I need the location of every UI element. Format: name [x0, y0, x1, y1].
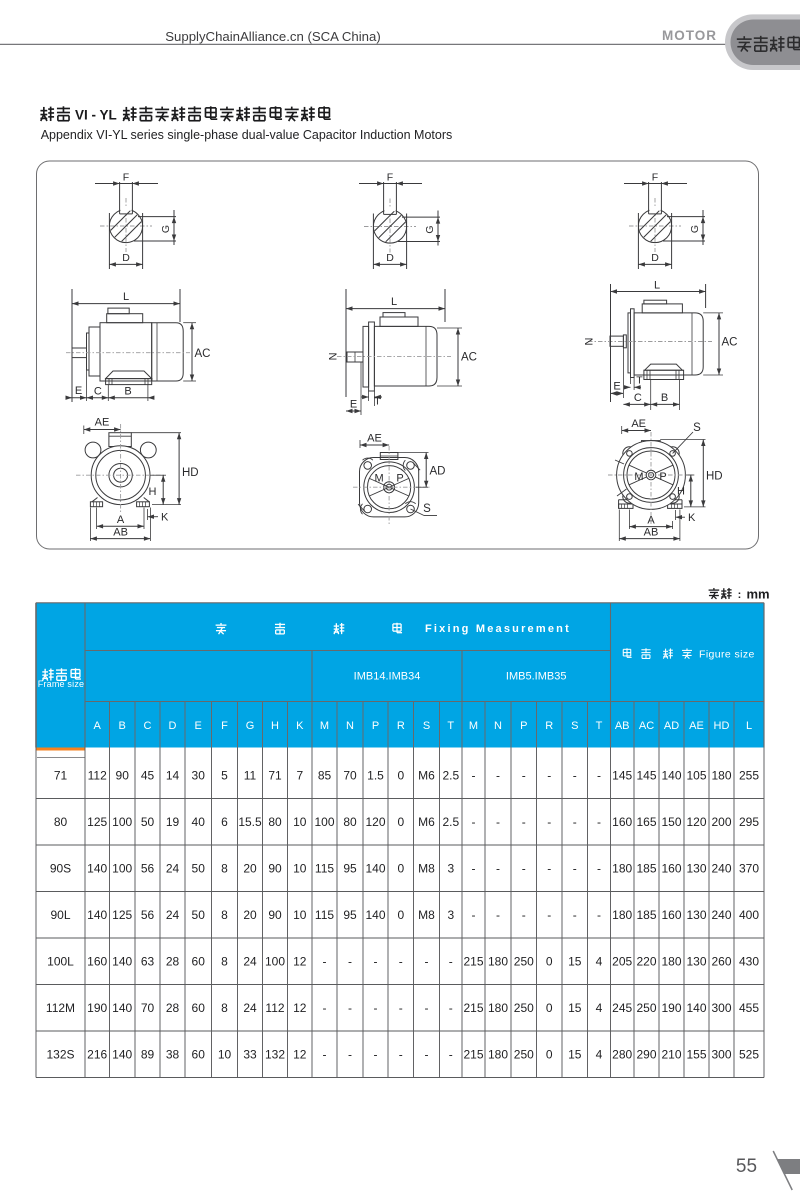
svg-text:155: 155	[686, 1048, 706, 1062]
svg-text:4: 4	[596, 955, 603, 969]
svg-text:100: 100	[112, 862, 132, 876]
svg-text:30: 30	[192, 769, 206, 783]
svg-text:180: 180	[661, 955, 681, 969]
svg-text:-: -	[597, 815, 601, 829]
svg-text:-: -	[522, 769, 526, 783]
svg-text:-: -	[449, 1001, 453, 1015]
svg-text:20: 20	[243, 862, 257, 876]
svg-text:60: 60	[192, 955, 206, 969]
svg-text:60: 60	[192, 1001, 206, 1015]
svg-text:15.5: 15.5	[238, 815, 262, 829]
svg-text:10: 10	[293, 908, 307, 922]
svg-text:-: -	[496, 769, 500, 783]
svg-text:180: 180	[488, 1001, 508, 1015]
svg-text:180: 180	[612, 908, 632, 922]
svg-text:80: 80	[343, 815, 357, 829]
svg-text:N: N	[584, 337, 596, 345]
svg-text:D: D	[651, 252, 659, 264]
svg-text:24: 24	[166, 908, 180, 922]
svg-text:VI - YL: VI - YL	[75, 108, 117, 123]
svg-text:B: B	[661, 392, 668, 404]
svg-text:-: -	[472, 908, 476, 922]
svg-text:-: -	[597, 862, 601, 876]
svg-text:90S: 90S	[50, 862, 71, 876]
svg-text:185: 185	[636, 862, 656, 876]
svg-text:T: T	[636, 375, 643, 387]
svg-text:205: 205	[612, 955, 632, 969]
svg-text:-: -	[348, 1001, 352, 1015]
svg-text:M: M	[320, 720, 329, 732]
svg-text:132: 132	[265, 1048, 285, 1062]
svg-text:L: L	[391, 296, 397, 308]
svg-text:20: 20	[243, 908, 257, 922]
svg-text:-: -	[573, 769, 577, 783]
svg-text:38: 38	[166, 1048, 180, 1062]
svg-text:6: 6	[221, 815, 228, 829]
svg-text:140: 140	[686, 1001, 706, 1015]
svg-text:130: 130	[686, 908, 706, 922]
svg-text:55: 55	[736, 1156, 757, 1177]
svg-text:K: K	[296, 720, 304, 732]
svg-text:89: 89	[141, 1048, 155, 1062]
svg-text:165: 165	[636, 815, 656, 829]
svg-text:T: T	[374, 396, 381, 408]
svg-text:215: 215	[463, 1048, 483, 1062]
svg-text:0: 0	[397, 908, 404, 922]
svg-text:S: S	[423, 503, 431, 515]
svg-text:A: A	[647, 514, 655, 526]
svg-text:60: 60	[192, 1048, 206, 1062]
svg-text:K: K	[161, 512, 169, 524]
svg-text:180: 180	[488, 1048, 508, 1062]
svg-text:10: 10	[293, 862, 307, 876]
svg-text:AC: AC	[639, 720, 654, 732]
svg-text:2.5: 2.5	[442, 815, 459, 829]
svg-text:112M: 112M	[46, 1001, 75, 1015]
svg-text:370: 370	[739, 862, 759, 876]
svg-text:28: 28	[166, 1001, 180, 1015]
svg-text:D: D	[386, 252, 394, 264]
svg-text:-: -	[449, 1048, 453, 1062]
svg-text:M8: M8	[418, 862, 435, 876]
svg-text:L: L	[746, 720, 752, 732]
svg-text:3: 3	[447, 862, 454, 876]
svg-text:112: 112	[88, 769, 107, 783]
svg-text:115: 115	[315, 862, 334, 876]
svg-text:220: 220	[636, 955, 656, 969]
svg-text:R: R	[397, 720, 405, 732]
svg-text:2.5: 2.5	[442, 769, 459, 783]
svg-text:255: 255	[739, 769, 759, 783]
svg-text:AB: AB	[113, 526, 128, 538]
svg-text:F: F	[123, 172, 129, 184]
svg-text:300: 300	[711, 1048, 731, 1062]
svg-text:90: 90	[116, 769, 130, 783]
svg-text:210: 210	[661, 1048, 681, 1062]
svg-text:-: -	[547, 908, 551, 922]
svg-text:AC: AC	[461, 352, 477, 364]
svg-text:-: -	[323, 1001, 327, 1015]
svg-text:AE: AE	[95, 417, 110, 429]
svg-text:4: 4	[596, 1001, 603, 1015]
svg-text:E: E	[75, 385, 82, 397]
svg-text:R: R	[545, 720, 553, 732]
svg-text:8: 8	[221, 862, 228, 876]
svg-text:N: N	[328, 352, 340, 360]
svg-text:Figure size: Figure size	[699, 649, 755, 661]
svg-text:100: 100	[314, 815, 334, 829]
svg-text:90: 90	[268, 908, 282, 922]
svg-text:-: -	[374, 955, 378, 969]
svg-text:525: 525	[739, 1048, 759, 1062]
svg-text:140: 140	[365, 908, 385, 922]
svg-text:240: 240	[711, 862, 731, 876]
svg-text:K: K	[688, 512, 696, 524]
svg-text:3: 3	[447, 908, 454, 922]
svg-text:90: 90	[268, 862, 282, 876]
svg-text:180: 180	[488, 955, 508, 969]
svg-text:-: -	[547, 769, 551, 783]
svg-text:50: 50	[192, 908, 206, 922]
svg-text:-: -	[449, 955, 453, 969]
svg-text:-: -	[323, 1048, 327, 1062]
svg-text:24: 24	[166, 862, 180, 876]
svg-text:160: 160	[661, 862, 681, 876]
svg-text:200: 200	[711, 815, 731, 829]
svg-text:-: -	[472, 862, 476, 876]
svg-text:10: 10	[293, 815, 307, 829]
svg-text:G: G	[689, 225, 701, 233]
svg-text:140: 140	[365, 862, 385, 876]
svg-text:-: -	[522, 862, 526, 876]
svg-text:430: 430	[739, 955, 759, 969]
svg-text:HD: HD	[706, 471, 723, 483]
svg-text:-: -	[399, 955, 403, 969]
svg-text:M: M	[375, 473, 384, 485]
svg-text:125: 125	[112, 908, 132, 922]
svg-text:132S: 132S	[46, 1048, 74, 1062]
svg-text:290: 290	[636, 1048, 656, 1062]
svg-text:140: 140	[87, 908, 107, 922]
svg-text:AD: AD	[430, 466, 446, 478]
svg-text:7: 7	[296, 769, 303, 783]
svg-text:120: 120	[365, 815, 385, 829]
svg-text:-: -	[472, 815, 476, 829]
svg-text:63: 63	[141, 955, 155, 969]
svg-text:SupplyChainAlliance.cn (SCA Ch: SupplyChainAlliance.cn (SCA China)	[165, 29, 381, 44]
svg-text:120: 120	[686, 815, 706, 829]
svg-text:185: 185	[636, 908, 656, 922]
svg-text:250: 250	[514, 1048, 534, 1062]
svg-text:T: T	[596, 720, 603, 732]
svg-text:S: S	[423, 720, 430, 732]
svg-text:-: -	[597, 769, 601, 783]
svg-text:80: 80	[54, 815, 68, 829]
svg-text:M: M	[634, 471, 643, 483]
svg-text:28: 28	[166, 955, 180, 969]
svg-text:90L: 90L	[50, 908, 70, 922]
svg-text:160: 160	[612, 815, 632, 829]
svg-text:15: 15	[568, 1001, 582, 1015]
svg-text:G: G	[424, 225, 436, 233]
svg-text:245: 245	[612, 1001, 632, 1015]
svg-text:P: P	[372, 720, 379, 732]
svg-text:400: 400	[739, 908, 759, 922]
svg-text:33: 33	[243, 1048, 257, 1062]
svg-text:Frame size: Frame size	[38, 679, 85, 689]
svg-text:40: 40	[192, 815, 206, 829]
svg-text:H: H	[149, 486, 157, 498]
svg-text:70: 70	[343, 769, 357, 783]
svg-text:160: 160	[87, 955, 107, 969]
svg-text:AE: AE	[631, 418, 646, 430]
svg-text:280: 280	[612, 1048, 632, 1062]
svg-text:-: -	[547, 862, 551, 876]
svg-text:190: 190	[87, 1001, 107, 1015]
svg-text:115: 115	[315, 908, 334, 922]
svg-text:G: G	[160, 225, 172, 233]
svg-text:12: 12	[293, 955, 307, 969]
svg-text:MOTOR: MOTOR	[662, 28, 717, 43]
svg-text:-: -	[374, 1048, 378, 1062]
svg-text:24: 24	[243, 1001, 257, 1015]
svg-text:180: 180	[711, 769, 731, 783]
svg-text:-: -	[425, 1048, 429, 1062]
svg-text:D: D	[122, 252, 130, 264]
svg-text:0: 0	[397, 769, 404, 783]
svg-text:24: 24	[243, 955, 257, 969]
svg-text:140: 140	[112, 955, 132, 969]
svg-text:H: H	[677, 486, 685, 498]
svg-text:B: B	[124, 386, 131, 398]
svg-text:0: 0	[546, 955, 553, 969]
svg-text:M6: M6	[418, 815, 435, 829]
svg-text:E: E	[195, 720, 202, 732]
svg-text:8: 8	[221, 1001, 228, 1015]
svg-text:-: -	[522, 815, 526, 829]
svg-text:E: E	[613, 381, 620, 393]
svg-text:100: 100	[112, 815, 132, 829]
svg-text:N: N	[494, 720, 502, 732]
svg-text:AE: AE	[689, 720, 704, 732]
svg-text:HD: HD	[182, 467, 199, 479]
svg-text:-: -	[425, 1001, 429, 1015]
svg-text:1.5: 1.5	[367, 769, 384, 783]
svg-text:-: -	[496, 815, 500, 829]
svg-text:95: 95	[343, 862, 357, 876]
svg-text:H: H	[271, 720, 279, 732]
svg-text:50: 50	[192, 862, 206, 876]
svg-text:-: -	[425, 955, 429, 969]
svg-text:12: 12	[293, 1048, 307, 1062]
svg-text:8: 8	[221, 955, 228, 969]
svg-text:0: 0	[546, 1001, 553, 1015]
svg-text:5: 5	[221, 769, 228, 783]
svg-text:140: 140	[112, 1001, 132, 1015]
svg-text:L: L	[654, 280, 660, 292]
svg-text:50: 50	[141, 815, 155, 829]
svg-text:G: G	[246, 720, 255, 732]
svg-text:C: C	[94, 386, 102, 398]
svg-text:F: F	[652, 172, 658, 184]
svg-text:240: 240	[711, 908, 731, 922]
svg-text:E: E	[350, 399, 357, 411]
svg-text:250: 250	[514, 1001, 534, 1015]
svg-text:85: 85	[318, 769, 332, 783]
svg-text:-: -	[573, 908, 577, 922]
svg-text:-: -	[597, 908, 601, 922]
svg-text:140: 140	[661, 769, 681, 783]
svg-text:150: 150	[661, 815, 681, 829]
svg-text:130: 130	[686, 862, 706, 876]
svg-text:250: 250	[636, 1001, 656, 1015]
svg-text:AC: AC	[195, 348, 211, 360]
svg-text:11: 11	[244, 769, 257, 783]
svg-text:70: 70	[141, 1001, 155, 1015]
svg-text:160: 160	[661, 908, 681, 922]
svg-text:IMB14.IMB34: IMB14.IMB34	[354, 671, 421, 683]
svg-text:T: T	[447, 720, 454, 732]
svg-text:215: 215	[463, 1001, 483, 1015]
svg-text:-: -	[348, 1048, 352, 1062]
svg-text:Fixing Measurement: Fixing Measurement	[425, 623, 571, 635]
svg-text:140: 140	[112, 1048, 132, 1062]
svg-text:56: 56	[141, 862, 155, 876]
svg-text:0: 0	[397, 862, 404, 876]
svg-text:4: 4	[596, 1048, 603, 1062]
svg-text:-: -	[472, 769, 476, 783]
svg-text:B: B	[119, 720, 126, 732]
svg-text:C: C	[634, 392, 642, 404]
svg-text:A: A	[94, 720, 102, 732]
svg-text:80: 80	[268, 815, 282, 829]
svg-text:14: 14	[166, 769, 180, 783]
svg-text:Appendix VI-YL series single-p: Appendix VI-YL series single-phase dual-…	[41, 128, 453, 142]
svg-text:-: -	[573, 815, 577, 829]
svg-text:71: 71	[54, 769, 68, 783]
svg-text:300: 300	[711, 1001, 731, 1015]
svg-text:AB: AB	[615, 720, 630, 732]
svg-text:56: 56	[141, 908, 155, 922]
svg-text:19: 19	[166, 815, 180, 829]
svg-text:145: 145	[636, 769, 656, 783]
svg-text:A: A	[117, 514, 125, 526]
svg-text:F: F	[387, 172, 393, 184]
svg-text:-: -	[399, 1048, 403, 1062]
svg-text:IMB5.IMB35: IMB5.IMB35	[506, 671, 567, 683]
svg-text:100L: 100L	[47, 955, 74, 969]
svg-text:190: 190	[661, 1001, 681, 1015]
svg-text:216: 216	[87, 1048, 107, 1062]
svg-text:M6: M6	[418, 769, 435, 783]
svg-text:45: 45	[141, 769, 155, 783]
svg-text:AC: AC	[722, 337, 738, 349]
svg-text:15: 15	[568, 1048, 582, 1062]
svg-text:M8: M8	[418, 908, 435, 922]
svg-text:250: 250	[514, 955, 534, 969]
svg-text:D: D	[169, 720, 177, 732]
svg-text:P: P	[659, 471, 666, 483]
svg-text:-: -	[399, 1001, 403, 1015]
svg-text::: :	[738, 589, 742, 601]
svg-text:C: C	[144, 720, 152, 732]
svg-text:112: 112	[265, 1001, 284, 1015]
svg-text:71: 71	[268, 769, 282, 783]
svg-text:-: -	[496, 908, 500, 922]
svg-text:125: 125	[87, 815, 107, 829]
svg-text:HD: HD	[714, 720, 730, 732]
svg-text:295: 295	[739, 815, 759, 829]
svg-text:130: 130	[686, 955, 706, 969]
svg-text:S: S	[571, 720, 578, 732]
svg-text:mm: mm	[747, 587, 770, 602]
svg-text:-: -	[348, 955, 352, 969]
svg-text:L: L	[123, 291, 129, 303]
svg-text:260: 260	[711, 955, 731, 969]
svg-text:145: 145	[612, 769, 632, 783]
svg-text:12: 12	[293, 1001, 307, 1015]
svg-text:-: -	[547, 815, 551, 829]
svg-text:-: -	[573, 862, 577, 876]
svg-text:0: 0	[397, 815, 404, 829]
svg-text:S: S	[693, 422, 701, 434]
svg-text:10: 10	[218, 1048, 232, 1062]
svg-text:95: 95	[343, 908, 357, 922]
svg-text:-: -	[374, 1001, 378, 1015]
svg-text:N: N	[346, 720, 354, 732]
svg-text:AB: AB	[644, 526, 659, 538]
svg-text:P: P	[520, 720, 527, 732]
svg-text:180: 180	[612, 862, 632, 876]
svg-text:-: -	[522, 908, 526, 922]
svg-text:100: 100	[265, 955, 285, 969]
svg-text:0: 0	[546, 1048, 553, 1062]
svg-text:8: 8	[221, 908, 228, 922]
svg-text:455: 455	[739, 1001, 759, 1015]
svg-text:-: -	[323, 955, 327, 969]
svg-text:105: 105	[686, 769, 706, 783]
svg-text:140: 140	[87, 862, 107, 876]
svg-text:AD: AD	[664, 720, 679, 732]
svg-text:P: P	[396, 473, 403, 485]
svg-text:15: 15	[568, 955, 582, 969]
svg-text:AE: AE	[367, 433, 382, 445]
svg-text:-: -	[496, 862, 500, 876]
svg-text:M: M	[469, 720, 478, 732]
svg-text:215: 215	[463, 955, 483, 969]
svg-text:F: F	[221, 720, 228, 732]
